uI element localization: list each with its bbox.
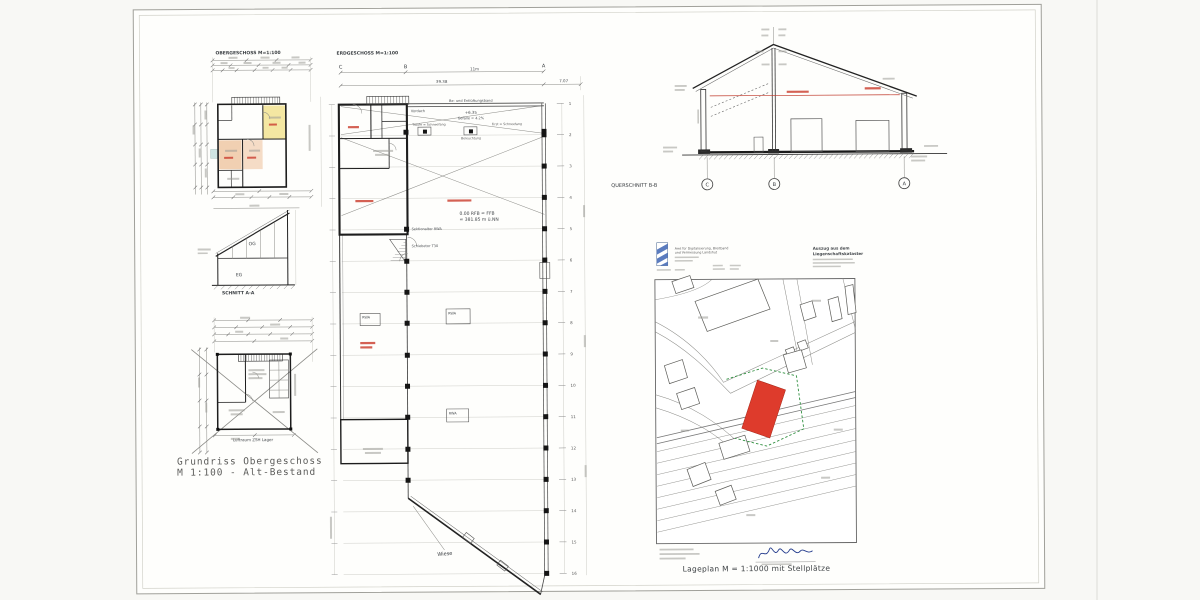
plan-sheet-drawing: OBERGESCHOSS M=1:100	[0, 0, 1200, 600]
traufe-right-label: First = Schneefang	[492, 122, 522, 126]
level-label-1: 0.00 RFB = FFB	[459, 211, 494, 217]
room-orange	[219, 140, 242, 169]
row-number: 10	[571, 383, 577, 388]
section-grid-c: C	[706, 182, 710, 188]
rwa-label-1: RWA	[362, 315, 371, 319]
traufe-left-label: Traufe = Schneefang	[411, 123, 445, 127]
og-level-label: OG	[249, 241, 257, 247]
row-number: 12	[571, 445, 577, 450]
grid-letter-b: B	[404, 64, 408, 70]
row-number: 13	[571, 477, 577, 482]
dim-total: 39.38	[436, 79, 448, 84]
og-plan-title: OBERGESCHOSS M=1:100	[215, 50, 280, 56]
row-number: 16	[572, 571, 578, 576]
row-number: 15	[571, 539, 577, 544]
bavaria-crest-icon	[657, 243, 668, 266]
level-label-2: = 381.85 m ü.NN	[459, 217, 498, 223]
room-cyan	[211, 149, 218, 158]
room-orange-2	[243, 140, 263, 169]
section-grid-a: A	[903, 181, 907, 187]
grid-letter-a: A	[542, 63, 546, 69]
sektionaltor-label: Sektionaltor RWA	[412, 227, 443, 231]
dim-right: 7.07	[559, 78, 568, 83]
extract-line-1: Auszug aus dem	[813, 246, 850, 251]
ridge-label: +6.35	[465, 110, 478, 115]
schnitt-aa-caption: SCHNITT A-A	[222, 290, 255, 296]
office-line-2: und Vermessung Landshut	[675, 250, 718, 254]
slope-label: Gefälle = 4.2%	[458, 116, 485, 120]
vordach-label: Vordach	[411, 109, 425, 113]
rwa-label-2: RWA	[448, 311, 457, 315]
eg-level-label: EG	[236, 272, 243, 278]
beleuchtung-label: Beleuchtung	[461, 136, 481, 140]
row-number: 11	[571, 414, 577, 419]
room-yellow	[263, 105, 285, 138]
vent-band-label: Be- und Entlüftungsband	[449, 99, 493, 103]
row-number: 14	[571, 508, 577, 513]
lageplan: Amt für Digitalisierung, Breitband und V…	[655, 241, 865, 573]
eg-plan-title: ERDGESCHOSS M=1:100	[336, 50, 398, 56]
dim-bay: 11m	[470, 66, 479, 71]
section-grid-b: B	[773, 182, 777, 188]
querschnitt-caption: QUERSCHNITT B-B	[611, 183, 658, 189]
alt-plan-caption-2: M 1:100 - Alt-Bestand	[177, 467, 316, 479]
scanned-sheet: OBERGESCHOSS M=1:100	[0, 0, 1200, 600]
schiebetor-label: Schiebetor T30	[412, 244, 439, 248]
grid-letter-c: C	[339, 65, 343, 71]
lageplan-caption: Lageplan M = 1:1000 mit Stellplätze	[683, 564, 831, 574]
rwa-label-3: RWA	[449, 411, 458, 415]
alt-plan-caption-1: Grundriss Obergeschoss	[177, 456, 323, 468]
extract-line-2: Liegenschaftskataster	[813, 251, 863, 256]
